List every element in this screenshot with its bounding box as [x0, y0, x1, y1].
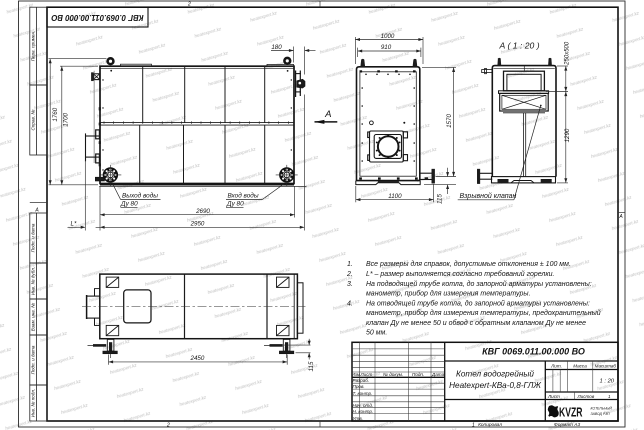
svg-text:На подводящей трубе котла, до: На подводящей трубе котла, до запорной а… — [366, 280, 592, 288]
svg-text:Подп. и дата: Подп. и дата — [31, 345, 36, 374]
svg-text:50 мм.: 50 мм. — [366, 329, 387, 336]
svg-text:115: 115 — [436, 194, 443, 204]
svg-text:манометр, прибор для измерения: манометр, прибор для измерения температу… — [366, 309, 601, 317]
svg-text:Котел водогрейный: Котел водогрейный — [456, 370, 534, 379]
svg-text:4.: 4. — [347, 301, 353, 308]
svg-text:ЗАВОД РЗП: ЗАВОД РЗП — [591, 412, 611, 416]
svg-text:2450: 2450 — [190, 355, 205, 362]
svg-text:Взрывной клапан: Взрывной клапан — [460, 192, 517, 200]
svg-text:L*: L* — [71, 220, 77, 227]
svg-text:А: А — [324, 109, 331, 120]
svg-text:2: 2 — [187, 2, 191, 8]
svg-text:1: 1 — [472, 422, 475, 428]
svg-text:КВГ 0.069.011.00.000 ВО: КВГ 0.069.011.00.000 ВО — [51, 13, 143, 22]
svg-text:Масса: Масса — [573, 363, 587, 368]
svg-text:Н. контр.: Н. контр. — [353, 409, 374, 414]
svg-text:Подп.: Подп. — [412, 372, 424, 377]
svg-text:Подп. и дата: Подп. и дата — [31, 223, 36, 252]
svg-text:А: А — [34, 208, 39, 214]
svg-text:А ( 1 : 20 ): А ( 1 : 20 ) — [498, 41, 539, 51]
svg-text:L* – размер выполняется соглас: L* – размер выполняется согласно требова… — [366, 270, 555, 278]
svg-text:KVZR: KVZR — [559, 405, 583, 419]
svg-text:Листов: Листов — [577, 394, 595, 399]
svg-text:Ду 80: Ду 80 — [120, 201, 138, 208]
svg-text:1000: 1000 — [381, 33, 395, 40]
svg-text:1: 1 — [608, 394, 611, 399]
svg-text:Ду 80: Ду 80 — [226, 201, 244, 208]
svg-text:Перв. примен.: Перв. примен. — [31, 31, 36, 62]
svg-text:КОТЕЛЬНЫЙ: КОТЕЛЬНЫЙ — [591, 406, 613, 410]
svg-text:клапан Ду не менее 50 и обвод: клапан Ду не менее 50 и обвод с обратным… — [366, 319, 586, 327]
svg-text:2: 2 — [166, 422, 170, 428]
svg-text:2690: 2690 — [195, 208, 210, 215]
svg-text:1 : 20: 1 : 20 — [600, 379, 615, 385]
svg-text:Утв.: Утв. — [353, 416, 363, 421]
svg-text:Heatexpert-КВа-0,8-ГЛЖ: Heatexpert-КВа-0,8-ГЛЖ — [449, 381, 541, 390]
svg-text:250х500: 250х500 — [565, 41, 571, 66]
svg-text:Т. контр.: Т. контр. — [353, 391, 373, 396]
svg-text:На отводящей трубе котла, до з: На отводящей трубе котла, до запорной ар… — [366, 300, 590, 308]
svg-text:манометр, прибор для измерения: манометр, прибор для измерения температу… — [366, 290, 531, 298]
svg-text:1100: 1100 — [388, 193, 402, 200]
svg-text:Лит.: Лит. — [550, 363, 562, 368]
svg-text:Выход воды: Выход воды — [122, 192, 158, 200]
svg-text:Разраб.: Разраб. — [353, 378, 370, 383]
svg-text:Дата: Дата — [431, 372, 445, 377]
svg-text:3.: 3. — [347, 281, 353, 288]
svg-text:910: 910 — [381, 44, 392, 51]
svg-text:Вход воды: Вход воды — [228, 192, 259, 200]
svg-text:Инв. № дубл.: Инв. № дубл. — [31, 267, 36, 295]
svg-text:КВГ 0069.011.00.000 ВО: КВГ 0069.011.00.000 ВО — [482, 347, 585, 357]
svg-text:1700: 1700 — [62, 112, 69, 126]
svg-text:1.: 1. — [347, 261, 353, 268]
svg-text:1290: 1290 — [564, 128, 571, 142]
svg-text:Справ. №: Справ. № — [31, 110, 36, 131]
svg-text:Формат А3: Формат А3 — [554, 422, 581, 428]
svg-text:1760: 1760 — [52, 107, 59, 121]
svg-text:115: 115 — [308, 361, 315, 371]
svg-text:Лист: Лист — [547, 394, 560, 399]
svg-text:Все размеры для справок, допус: Все размеры для справок, допустимые откл… — [366, 260, 571, 268]
svg-text:Нач. отд.: Нач. отд. — [353, 403, 374, 408]
svg-text:Масштаб: Масштаб — [595, 363, 617, 368]
svg-text:Инв. № подл.: Инв. № подл. — [31, 389, 36, 418]
svg-text:2950: 2950 — [190, 221, 205, 228]
svg-text:2.: 2. — [346, 271, 353, 278]
svg-text:Копировал: Копировал — [478, 422, 502, 428]
svg-text:180: 180 — [271, 44, 282, 51]
svg-text:Лист: Лист — [360, 372, 373, 377]
svg-text:А: А — [618, 214, 623, 220]
svg-text:Пров.: Пров. — [353, 384, 365, 389]
svg-text:1570: 1570 — [446, 114, 453, 128]
svg-text:Взам. инв. №: Взам. инв. № — [31, 303, 36, 331]
svg-text:№ докум.: № докум. — [383, 372, 403, 377]
